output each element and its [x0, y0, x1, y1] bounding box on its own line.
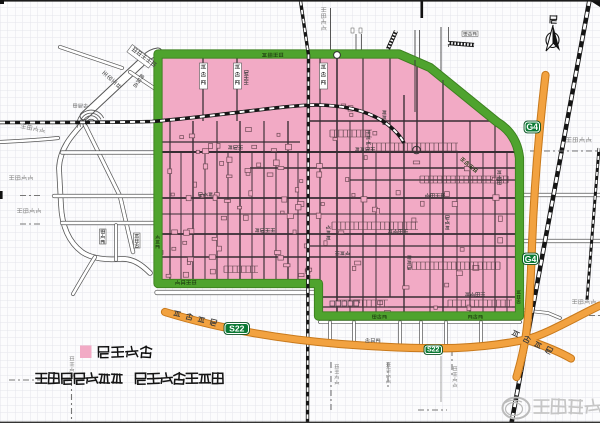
- svg-text:G4: G4: [526, 122, 538, 132]
- svg-text:G4: G4: [525, 254, 537, 264]
- svg-text:S22: S22: [229, 324, 245, 334]
- svg-text:S22: S22: [427, 346, 440, 353]
